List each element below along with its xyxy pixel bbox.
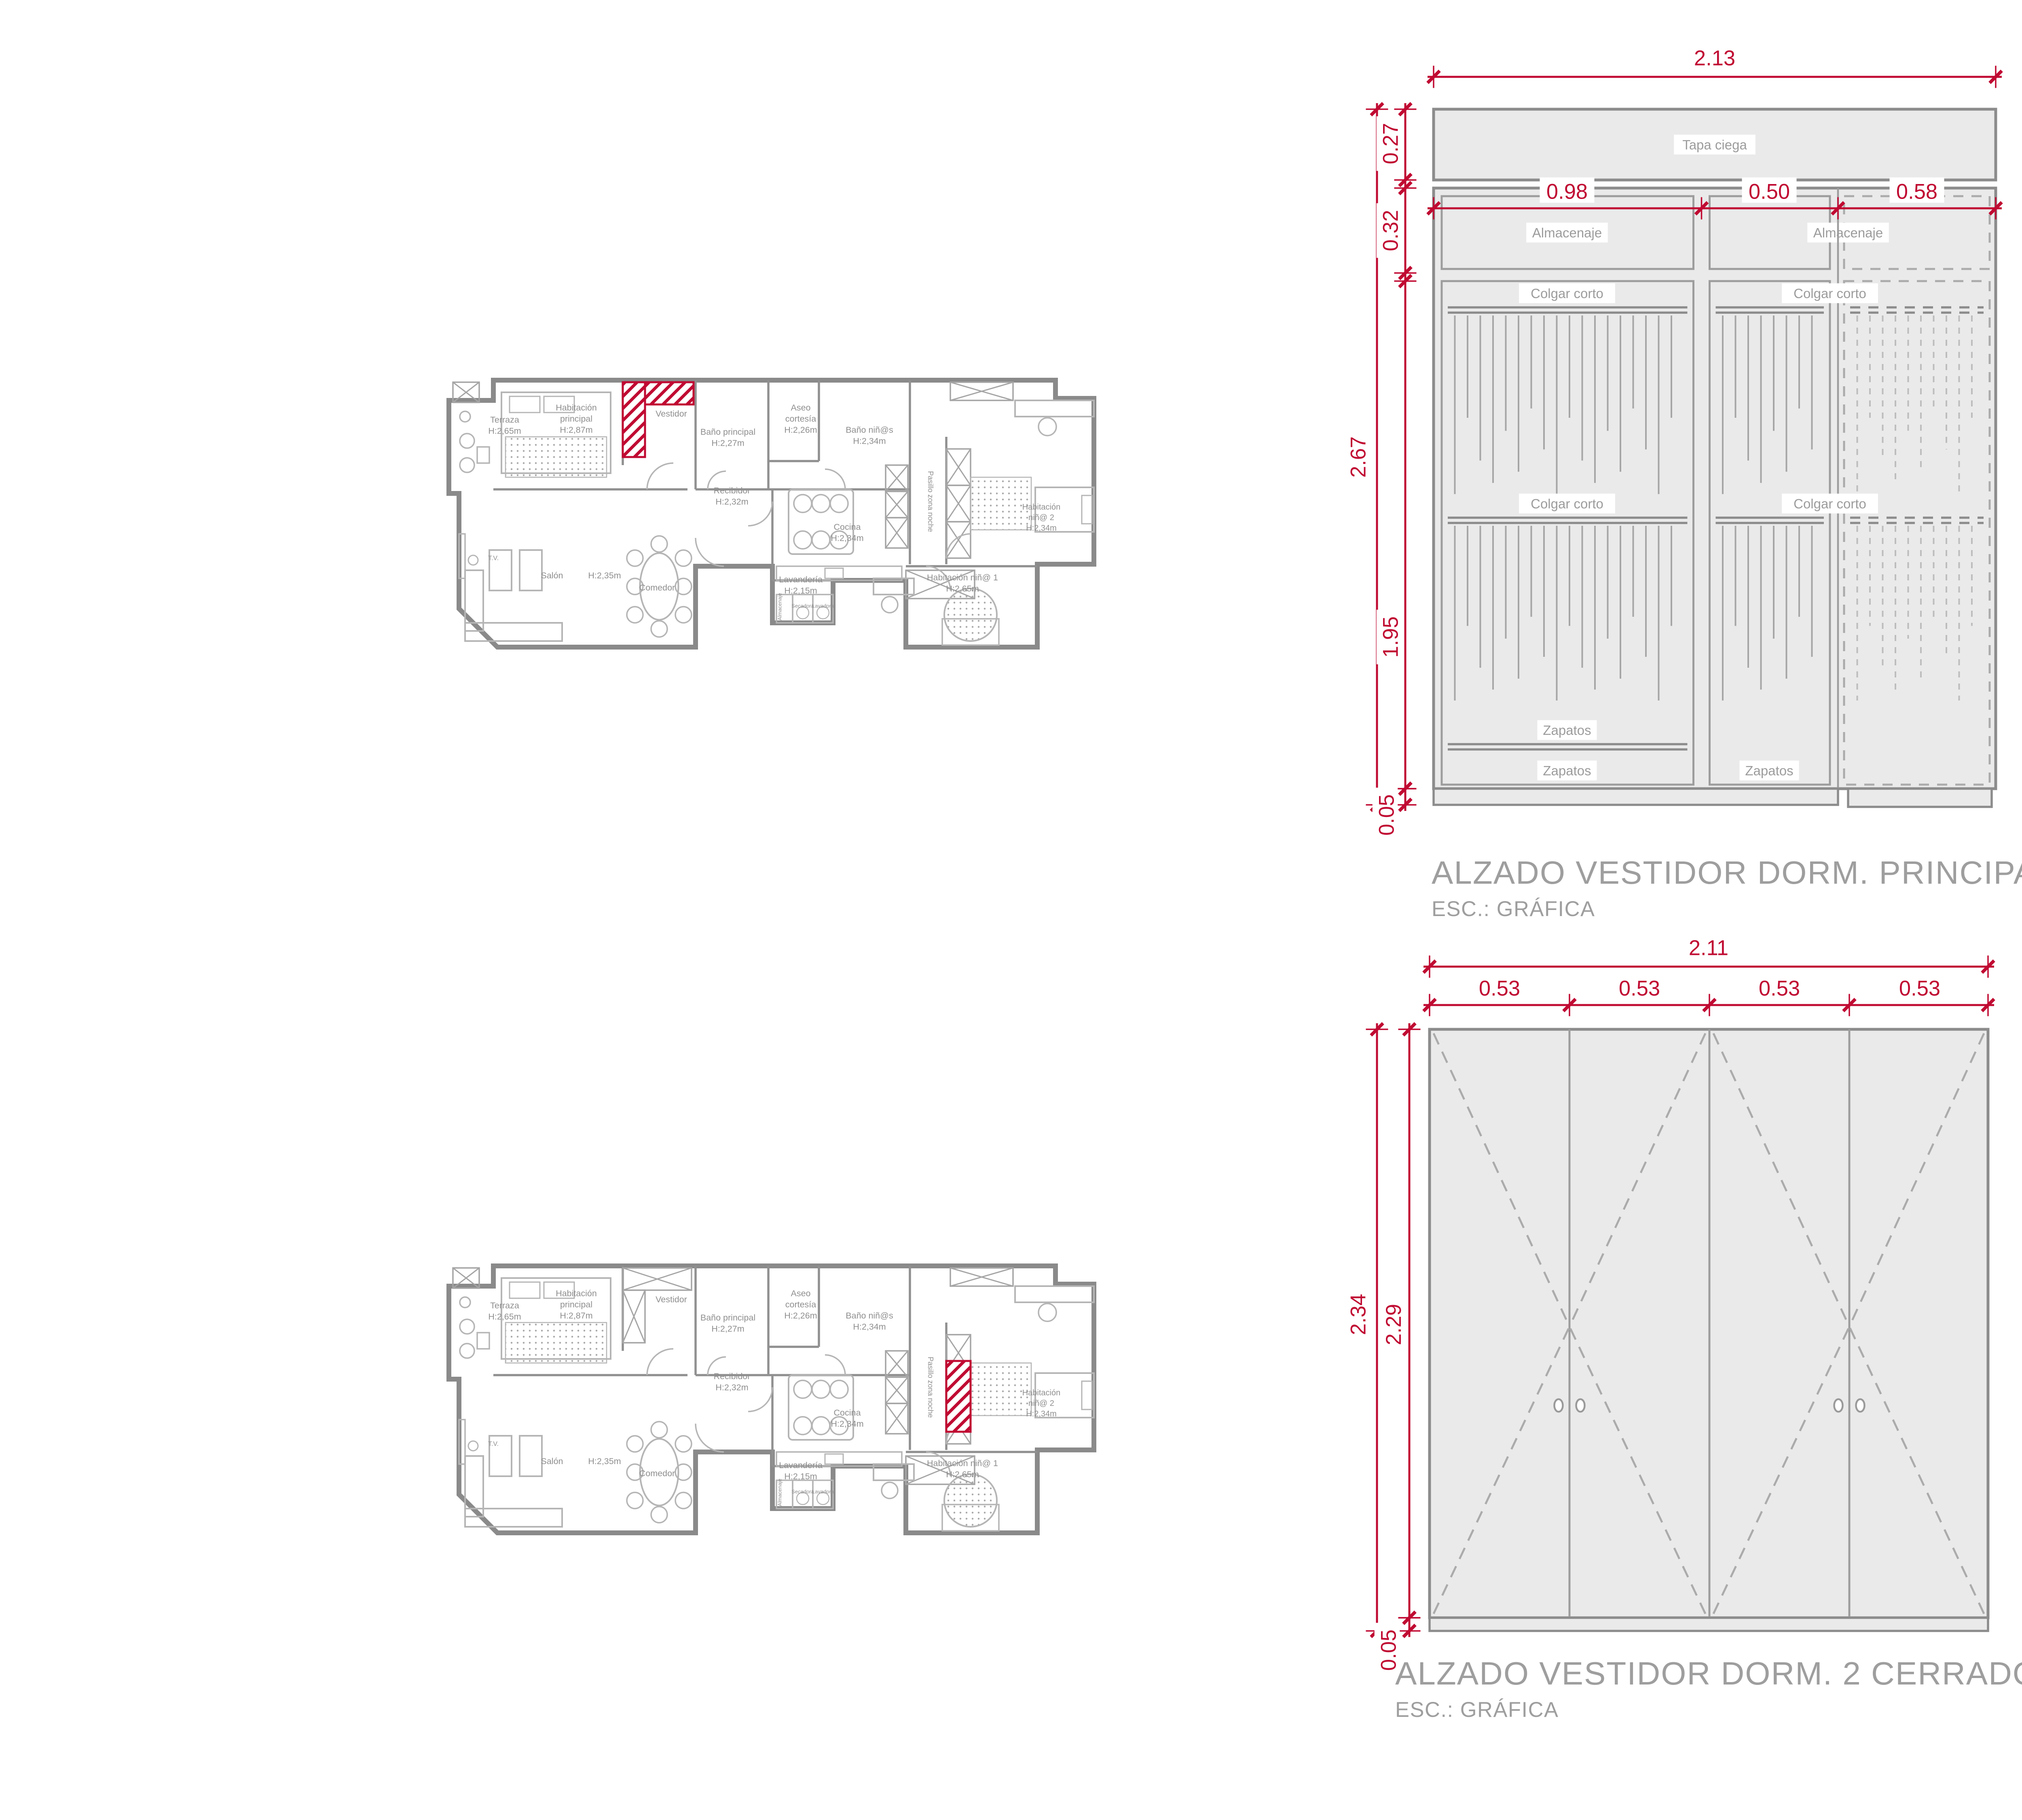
room-label: H:2,35m [588, 571, 621, 580]
room-label: Almacenaje [777, 1479, 783, 1506]
scale-note-dorm2-cerrado: ESC.: GRÁFICA [1395, 1699, 1559, 1723]
svg-text:H:2,26m: H:2,26m [784, 1311, 817, 1321]
svg-text:Lavadora: Lavadora [812, 1489, 834, 1495]
room-label: H:2,35m [588, 1456, 621, 1466]
scale-note-principal: ESC.: GRÁFICA [1432, 898, 1595, 922]
room-label: Comedor [639, 583, 675, 593]
svg-text:Aseo: Aseo [791, 403, 810, 413]
room-label: HabitaciónprincipalH:2,87m [556, 1289, 597, 1321]
elevation-vestidor-principal-wall-a: Tapa ciegaAlmacenajeAlmacenajeColgar cor… [1344, 44, 2002, 842]
svg-text:Cocina: Cocina [834, 1408, 861, 1418]
svg-text:H:2,26m: H:2,26m [784, 425, 817, 435]
svg-text:Habitación niñ@ 1: Habitación niñ@ 1 [927, 573, 998, 582]
label-chip: Zapatos [1537, 720, 1597, 740]
dim-label: 2.67 [1344, 430, 1371, 485]
label-chip: Colgar corto [1782, 284, 1878, 303]
svg-text:H:2,27m: H:2,27m [711, 438, 744, 448]
svg-text:Salón: Salón [541, 1456, 563, 1466]
svg-text:Cocina: Cocina [834, 522, 861, 532]
svg-text:Vestidor: Vestidor [656, 1295, 687, 1304]
floor-plan-bottom: TerrazaH:2,65mHabitaciónprincipalH:2,87m… [449, 1266, 1094, 1533]
room-label: Almacenaje [777, 593, 783, 620]
svg-text:Habitación: Habitación [1022, 503, 1061, 512]
room-label: HabitaciónprincipalH:2,87m [556, 403, 597, 435]
svg-text:Colgar corto: Colgar corto [1531, 286, 1603, 301]
svg-text:H:2,34m: H:2,34m [831, 1419, 863, 1429]
svg-text:2.13: 2.13 [1694, 47, 1735, 70]
dim-label: 0.50 [1742, 178, 1797, 204]
svg-text:2.34: 2.34 [1347, 1294, 1371, 1335]
svg-text:Recibidor: Recibidor [714, 486, 751, 495]
dim-label: 0.53 [1612, 974, 1667, 1001]
svg-text:H:2,27m: H:2,27m [711, 1324, 744, 1334]
room-label: Vestidor [656, 1295, 687, 1304]
svg-text:Comedor: Comedor [639, 583, 675, 593]
dim-label: 0.53 [1752, 974, 1807, 1001]
svg-text:Habitación: Habitación [556, 403, 597, 413]
svg-text:H:2,15m: H:2,15m [784, 586, 817, 596]
svg-text:Colgar corto: Colgar corto [1794, 286, 1866, 301]
svg-text:0.53: 0.53 [1479, 977, 1520, 1001]
svg-text:Recibidor: Recibidor [714, 1371, 751, 1381]
svg-text:Baño niñ@s: Baño niñ@s [846, 1311, 893, 1321]
svg-text:Zapatos: Zapatos [1543, 723, 1591, 738]
room-label: Comedor [639, 1469, 675, 1478]
svg-text:H:2,35m: H:2,35m [588, 1456, 621, 1466]
drawing-canvas: Tapa ciegaAlmacenajeAlmacenajeColgar cor… [0, 0, 2022, 1820]
label-chip: Zapatos [1739, 761, 1799, 781]
svg-text:2.11: 2.11 [1689, 936, 1728, 960]
dim-label: 0.27 [1377, 116, 1403, 171]
room-label: Pasillo zona noche [926, 471, 935, 532]
svg-text:H:2,34m: H:2,34m [853, 1322, 886, 1332]
label-chip: Almacenaje [1526, 223, 1607, 243]
svg-text:principal: principal [560, 1300, 592, 1310]
dim-label: 0.32 [1377, 203, 1403, 258]
dim-label: 0.58 [1890, 178, 1944, 204]
svg-text:principal: principal [560, 414, 592, 424]
dim-label: 0.98 [1540, 178, 1595, 204]
svg-text:0.50: 0.50 [1749, 180, 1790, 204]
svg-text:Pasillo zona noche: Pasillo zona noche [926, 471, 935, 532]
svg-text:Lavadora: Lavadora [812, 603, 834, 609]
svg-text:niñ@ 2: niñ@ 2 [1028, 1399, 1054, 1408]
svg-text:Vestidor: Vestidor [656, 409, 687, 419]
svg-text:cortesía: cortesía [785, 414, 816, 424]
svg-text:H:2,65m: H:2,65m [946, 1470, 979, 1479]
room-label: Secadora [791, 1489, 814, 1495]
room-label: Lavadora [812, 603, 834, 609]
room-label: Secadora [791, 603, 814, 609]
svg-text:0.27: 0.27 [1379, 123, 1403, 164]
svg-text:Lavandería: Lavandería [779, 1460, 823, 1470]
svg-text:T.V.: T.V. [488, 1441, 499, 1448]
svg-text:cortesía: cortesía [785, 1300, 816, 1310]
svg-text:0.53: 0.53 [1759, 977, 1800, 1001]
svg-text:H:2,32m: H:2,32m [715, 1383, 748, 1393]
svg-text:H:2,65m: H:2,65m [488, 1312, 521, 1322]
room-label: T.V. [488, 1441, 499, 1448]
label-chip: Zapatos [1537, 761, 1597, 781]
svg-text:Baño principal: Baño principal [700, 427, 755, 437]
svg-text:Pasillo zona noche: Pasillo zona noche [926, 1357, 935, 1418]
floor-plan-top: TerrazaH:2,65mHabitaciónprincipalH:2,87m… [449, 380, 1094, 647]
svg-text:H:2,35m: H:2,35m [588, 571, 621, 580]
svg-text:H:2,87m: H:2,87m [560, 425, 592, 435]
svg-text:niñ@ 2: niñ@ 2 [1028, 513, 1054, 522]
room-label: Salón [541, 571, 563, 580]
svg-text:H:2,34m: H:2,34m [853, 436, 886, 446]
svg-text:Habitación: Habitación [1022, 1388, 1061, 1397]
svg-text:0.32: 0.32 [1379, 210, 1403, 251]
dim-label: 0.05 [1373, 788, 1399, 842]
svg-text:Almacenaje: Almacenaje [777, 593, 783, 620]
svg-text:Baño niñ@s: Baño niñ@s [846, 425, 893, 435]
label-chip: Almacenaje [1807, 223, 1889, 243]
svg-text:Salón: Salón [541, 571, 563, 580]
svg-text:Aseo: Aseo [791, 1289, 810, 1298]
svg-text:Almacenaje: Almacenaje [1813, 225, 1883, 240]
room-label: Lavadora [812, 1489, 834, 1495]
svg-text:H:2,34m: H:2,34m [831, 533, 863, 543]
room-label: T.V. [488, 555, 499, 562]
dim-label: 2.13 [1688, 44, 1742, 70]
dim-label: 0.53 [1472, 974, 1527, 1001]
svg-text:Lavandería: Lavandería [779, 575, 823, 584]
svg-text:0.53: 0.53 [1619, 977, 1660, 1001]
svg-text:Habitación niñ@ 1: Habitación niñ@ 1 [927, 1458, 998, 1468]
svg-text:0.58: 0.58 [1896, 180, 1937, 204]
svg-text:Secadora: Secadora [791, 603, 814, 609]
svg-text:0.53: 0.53 [1899, 977, 1940, 1001]
label-chip: Tapa ciega [1674, 135, 1756, 154]
dim-label: 1.95 [1377, 610, 1403, 665]
dim-label: 2.29 [1379, 1297, 1406, 1352]
svg-text:2.29: 2.29 [1382, 1304, 1406, 1345]
svg-text:T.V.: T.V. [488, 555, 499, 562]
svg-text:Tapa ciega: Tapa ciega [1682, 137, 1747, 152]
svg-text:1.95: 1.95 [1379, 616, 1403, 658]
svg-text:H:2,32m: H:2,32m [715, 497, 748, 507]
highlighted-wardrobe [623, 382, 645, 457]
label-chip: Colgar corto [1782, 494, 1878, 514]
title-principal-abierto: ALZADO VESTIDOR DORM. PRINCIPAL ABIERTO [1432, 857, 2022, 894]
svg-text:Secadora: Secadora [791, 1489, 814, 1495]
label-chip: Colgar corto [1519, 494, 1615, 514]
title-dorm2-cerrado: ALZADO VESTIDOR DORM. 2 CERRADO [1395, 1658, 2022, 1695]
dim-label: 2.34 [1344, 1287, 1371, 1342]
svg-text:Habitación: Habitación [556, 1289, 597, 1298]
dim-label: 0.53 [1893, 974, 1947, 1001]
sheet: Tapa ciegaAlmacenajeAlmacenajeColgar cor… [0, 0, 2022, 1820]
svg-text:H:2,65m: H:2,65m [488, 426, 521, 436]
svg-text:Zapatos: Zapatos [1745, 763, 1793, 778]
dim-label: 2.11 [1681, 934, 1736, 960]
svg-text:Almacenaje: Almacenaje [1532, 225, 1602, 240]
elevation-vestidor-dorm2-cerrado: 2.110.530.530.530.532.342.290.05 [1344, 934, 1994, 1678]
svg-text:Colgar corto: Colgar corto [1794, 496, 1866, 511]
svg-text:Zapatos: Zapatos [1543, 763, 1591, 778]
svg-text:Terraza: Terraza [490, 1301, 519, 1310]
svg-text:H:2,34m: H:2,34m [1026, 524, 1057, 533]
room-label: Pasillo zona noche [926, 1357, 935, 1418]
svg-text:Almacenaje: Almacenaje [777, 1479, 783, 1506]
svg-text:H:2,87m: H:2,87m [560, 1311, 592, 1321]
svg-text:Colgar corto: Colgar corto [1531, 496, 1603, 511]
svg-text:Comedor: Comedor [639, 1469, 675, 1478]
room-label: Vestidor [656, 409, 687, 419]
highlighted-wardrobe [946, 1361, 971, 1432]
svg-text:0.98: 0.98 [1546, 180, 1588, 204]
room-label: Salón [541, 1456, 563, 1466]
label-chip: Colgar corto [1519, 284, 1615, 303]
svg-text:2.67: 2.67 [1347, 436, 1371, 478]
svg-text:H:2,15m: H:2,15m [784, 1472, 817, 1481]
svg-text:Baño principal: Baño principal [700, 1313, 755, 1323]
svg-text:0.05: 0.05 [1375, 794, 1399, 836]
svg-text:H:2,65m: H:2,65m [946, 584, 979, 594]
svg-text:Terraza: Terraza [490, 415, 519, 425]
svg-text:H:2,34m: H:2,34m [1026, 1409, 1057, 1418]
